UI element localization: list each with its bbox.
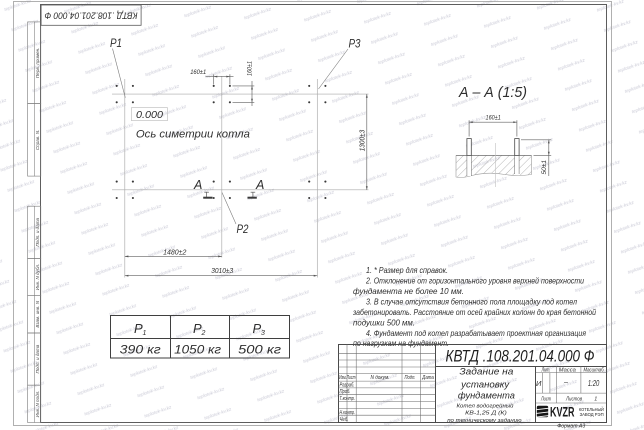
svg-text:Н.контр.: Н.контр. [340,410,356,416]
svg-text:Инв. N подл.: Инв. N подл. [35,390,40,417]
svg-text:Перв. примен.: Перв. примен. [35,48,40,79]
svg-text:Листов: Листов [565,397,582,403]
svg-text:КВ-1,25 Д (К): КВ-1,25 Д (К) [465,410,507,416]
svg-text:500 кг: 500 кг [238,345,281,357]
svg-text:Лит.: Лит. [541,367,551,373]
svg-text:КВТД .108.201.04.000 Ф: КВТД .108.201.04.000 Ф [446,348,595,366]
svg-text:А: А [193,178,202,192]
svg-text:1:20: 1:20 [588,379,600,388]
svg-text:Чеб.: Чеб. [340,417,349,423]
svg-text:3010±3: 3010±3 [211,266,234,275]
svg-text:КОТЕЛЬНЫЙ: КОТЕЛЬНЫЙ [579,405,604,412]
svg-text:160±1: 160±1 [486,115,501,122]
svg-text:1: 1 [594,397,597,403]
svg-text:1300±3: 1300±3 [357,129,366,151]
svg-text:1050 кг: 1050 кг [174,345,221,357]
svg-text:Подп. и дата: Подп. и дата [35,217,40,246]
svg-text:фундамента: фундамента [458,391,515,401]
svg-text:Задание на: Задание на [459,367,513,377]
svg-text:Т.контр.: Т.контр. [340,396,356,402]
svg-text:Подп. и дата: Подп. и дата [35,344,40,373]
svg-text:160±1: 160±1 [246,61,253,76]
svg-text:0.000: 0.000 [136,109,163,121]
svg-text:подушки 500 мм.: подушки 500 мм. [353,318,415,327]
svg-text:по нагрузкам на фундамент.: по нагрузкам на фундамент. [353,339,449,348]
svg-text:Масса: Масса [559,367,576,373]
svg-text:3. В случае отсутствия бетонно: 3. В случае отсутствия бетонного пола пл… [366,297,577,306]
svg-text:2: 2 [201,330,206,337]
svg-text:–: – [563,380,568,387]
svg-text:390 кг: 390 кг [120,345,161,357]
svg-text:2. Отклонение от горизонтально: 2. Отклонение от горизонтального уровня … [365,276,584,285]
svg-text:ЗАВОД РЭП: ЗАВОД РЭП [580,412,604,417]
svg-text:Изм.Лист: Изм.Лист [339,375,356,381]
svg-text:А – А (1:5): А – А (1:5) [458,85,527,101]
svg-text:Лист: Лист [540,397,551,403]
svg-text:3: 3 [261,330,265,337]
svg-text:160±1: 160±1 [190,69,206,76]
svg-text:Дата: Дата [421,375,433,381]
svg-text:50±1: 50±1 [541,160,548,175]
svg-text:И: И [536,379,542,388]
svg-text:забетонировать. Расстояние от: забетонировать. Расстояние от осей крайн… [352,308,596,317]
svg-text:P1: P1 [110,38,122,50]
svg-text:фундамента не более 10 мм.: фундамента не более 10 мм. [353,287,464,296]
svg-text:1480±2: 1480±2 [163,247,187,256]
svg-text:4. Фундамент под котел разраба: 4. Фундамент под котел разрабатывает про… [366,329,587,338]
svg-text:КВТД .108.201.04.000 Ф: КВТД .108.201.04.000 Ф [44,10,137,21]
svg-text:1: 1 [143,330,147,337]
svg-text:Масштаб: Масштаб [584,367,605,373]
svg-text:N докум.: N докум. [371,375,390,381]
svg-text:Подп.: Подп. [405,375,416,381]
svg-text:1. * Размер для справок.: 1. * Размер для справок. [366,266,448,275]
svg-text:установку: установку [460,380,511,390]
svg-text:Ось симетрии котла: Ось симетрии котла [136,129,250,141]
svg-text:по техническому заданию: по техническому заданию [447,418,522,424]
svg-text:Инв. N дубл.: Инв. N дубл. [35,264,40,291]
svg-text:Справ. N.: Справ. N. [35,130,40,151]
svg-text:Формат А3: Формат А3 [557,424,586,430]
svg-text:Проб.: Проб. [340,389,351,395]
svg-text:А: А [255,178,264,192]
svg-text:Котел водогрейный: Котел водогрейный [457,403,515,410]
svg-text:P2: P2 [237,224,250,236]
svg-text:Взам. инв. N: Взам. инв. N [35,300,40,327]
svg-text:P3: P3 [349,39,362,51]
svg-text:KVZR: KVZR [550,405,575,420]
svg-text:Разраб.: Разраб. [340,382,355,388]
